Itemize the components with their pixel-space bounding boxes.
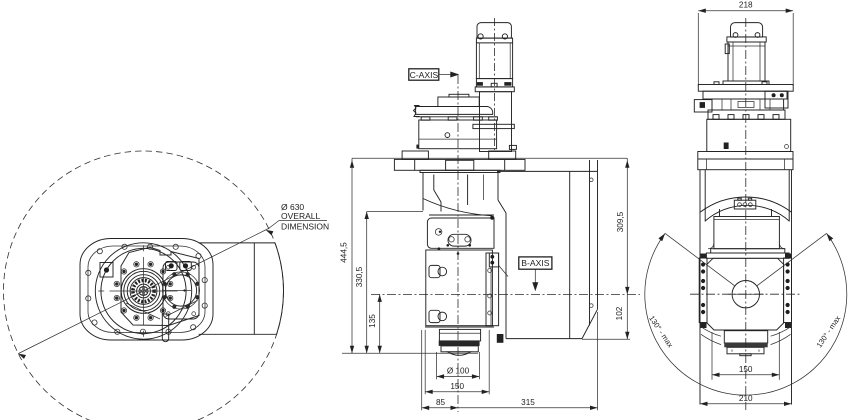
svg-text:B-AXIS: B-AXIS: [521, 258, 549, 268]
svg-text:DIMENSION: DIMENSION: [281, 222, 329, 232]
svg-text:130° - max: 130° - max: [647, 314, 675, 349]
svg-text:309,5: 309,5: [616, 211, 625, 232]
svg-text:315: 315: [521, 398, 535, 407]
svg-text:Ø 100: Ø 100: [447, 367, 470, 376]
svg-text:C-AXIS: C-AXIS: [410, 70, 439, 80]
svg-text:218: 218: [739, 1, 753, 10]
svg-text:330,5: 330,5: [355, 266, 364, 287]
svg-text:102: 102: [615, 306, 624, 320]
svg-text:85: 85: [436, 398, 446, 407]
svg-text:130° - max: 130° - max: [815, 314, 843, 349]
svg-text:150: 150: [450, 382, 464, 391]
svg-text:135: 135: [368, 314, 377, 328]
svg-text:OVERALL: OVERALL: [281, 211, 320, 221]
svg-text:444,5: 444,5: [340, 242, 349, 263]
